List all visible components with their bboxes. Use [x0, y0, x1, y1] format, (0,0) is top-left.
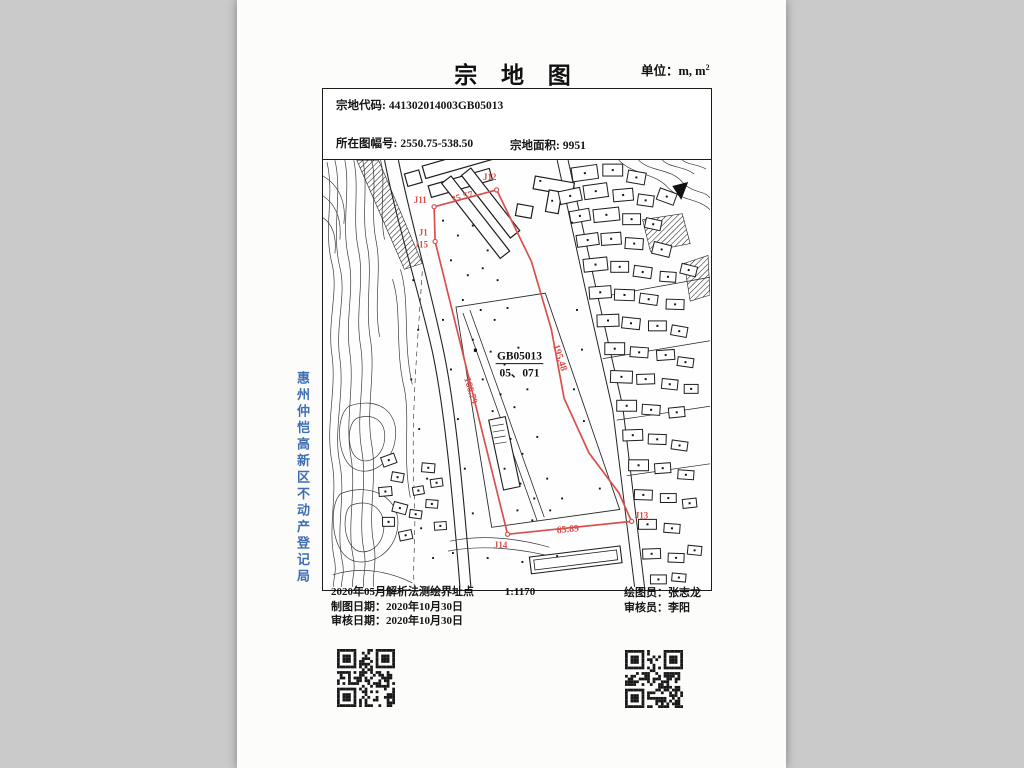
reviewer-row: 审核员：李阳: [624, 601, 701, 616]
unit-label: 单位：m, m2: [641, 60, 710, 79]
survey-note: 2020年05月解析法测绘界址点: [331, 585, 474, 600]
parcel-code-label: 宗地代码:: [336, 100, 386, 112]
qr-code-right: [625, 649, 683, 709]
map-scale: 1:1170: [480, 586, 560, 598]
building-bottom: [529, 546, 622, 574]
draw-date-value: 2020年10月30日: [386, 601, 463, 613]
edge-length-right: 195.48: [550, 343, 569, 372]
point-label-j13: J13: [635, 510, 649, 520]
drafter-label: 绘图员：: [624, 587, 668, 599]
parcel-area-label: 宗地面积:: [510, 140, 560, 152]
edge-length-left: 166.79: [461, 376, 479, 405]
parcel-interior: [456, 293, 620, 527]
qr-code-left: [337, 649, 395, 707]
point-label-j1: J1: [419, 228, 428, 238]
point-label-j12: J12: [483, 172, 497, 182]
point-label-j14: J14: [494, 540, 508, 550]
cadastral-map: GB05013 05、071 J11 J12 J1: [323, 160, 711, 590]
sheet-number-value: 2550.75-538.50: [400, 138, 473, 150]
drafter-name: 张志龙: [668, 587, 701, 599]
sheet-header: 宗地代码:441302014003GB05013 所在图幅号:2550.75-5…: [323, 89, 711, 160]
review-date-label: 审核日期：: [331, 615, 386, 627]
edge-length-bottom: 65.89: [556, 523, 579, 536]
sheet-number-label: 所在图幅号:: [336, 138, 397, 150]
parcel-code-short: GB05013: [497, 351, 542, 363]
parcel-sheet: 宗地代码:441302014003GB05013 所在图幅号:2550.75-5…: [322, 88, 712, 591]
draw-date-row: 制图日期：2020年10月30日: [331, 600, 474, 615]
parcel-code-value: 441302014003GB05013: [389, 100, 503, 112]
unit-text: 单位：m, m: [641, 64, 706, 78]
footer-right: 绘图员：张志龙 审核员：李阳: [624, 586, 701, 616]
point-label-j11: J11: [414, 195, 427, 205]
parcel-area-row: 宗地面积:9951: [510, 137, 589, 153]
agency-vertical-text: 惠州仲恺高新区不动产登记局: [293, 371, 312, 586]
sheet-number-row: 所在图幅号:2550.75-538.50: [336, 135, 476, 151]
reviewer-name: 李阳: [668, 602, 690, 614]
desktop: { "page": { "title": "宗 地 图", "unit_pref…: [0, 0, 1024, 768]
document-page: 宗 地 图 单位：m, m2 宗地代码:441302014003GB05013 …: [237, 0, 786, 768]
point-label-j15: J15: [415, 239, 429, 249]
parcel-code-annotation: GB05013 05、071: [474, 349, 543, 380]
map-drawing: GB05013 05、071 J11 J12 J1: [323, 160, 710, 587]
parcel-code-row: 宗地代码:441302014003GB05013: [336, 97, 506, 113]
review-date-row: 审核日期：2020年10月30日: [331, 614, 474, 629]
reviewer-label: 审核员：: [624, 602, 668, 614]
unit-superscript: 2: [706, 63, 710, 72]
draw-date-label: 制图日期：: [331, 601, 386, 613]
review-date-value: 2020年10月30日: [386, 615, 463, 627]
drafter-row: 绘图员：张志龙: [624, 586, 701, 601]
footer-left: 2020年05月解析法测绘界址点 制图日期：2020年10月30日 审核日期：2…: [331, 585, 474, 629]
parcel-area-value: 9951: [563, 140, 586, 152]
parcel-subcode: 05、071: [500, 367, 540, 379]
